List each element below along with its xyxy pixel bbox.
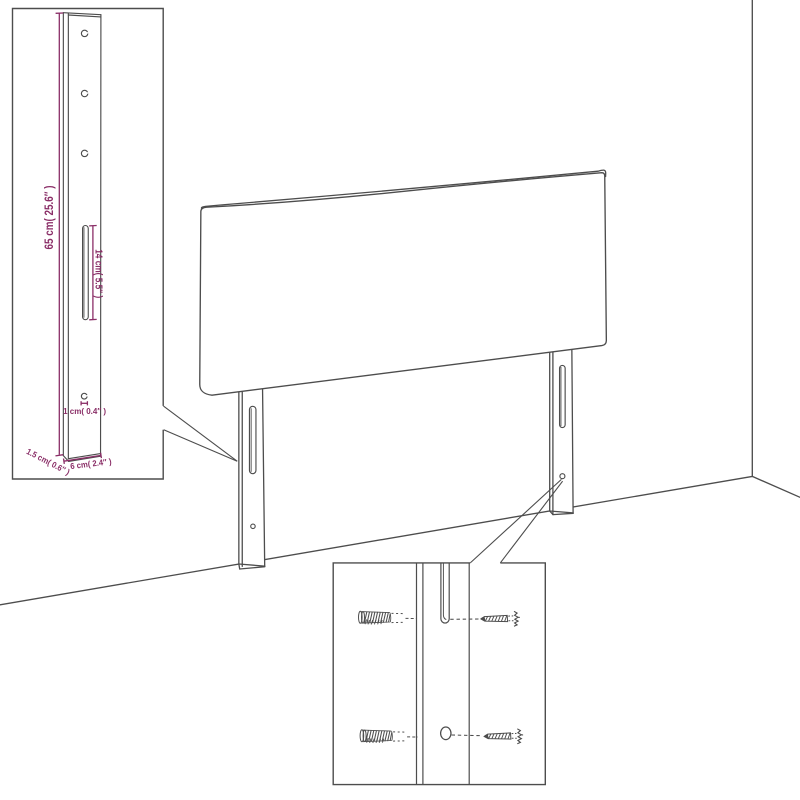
svg-text:65 cm( 25.6″ ): 65 cm( 25.6″ ): [44, 185, 56, 249]
svg-text:1 cm( 0.4″ ): 1 cm( 0.4″ ): [63, 406, 106, 416]
svg-text:14 cm( 5.5″ ): 14 cm( 5.5″ ): [92, 249, 103, 298]
